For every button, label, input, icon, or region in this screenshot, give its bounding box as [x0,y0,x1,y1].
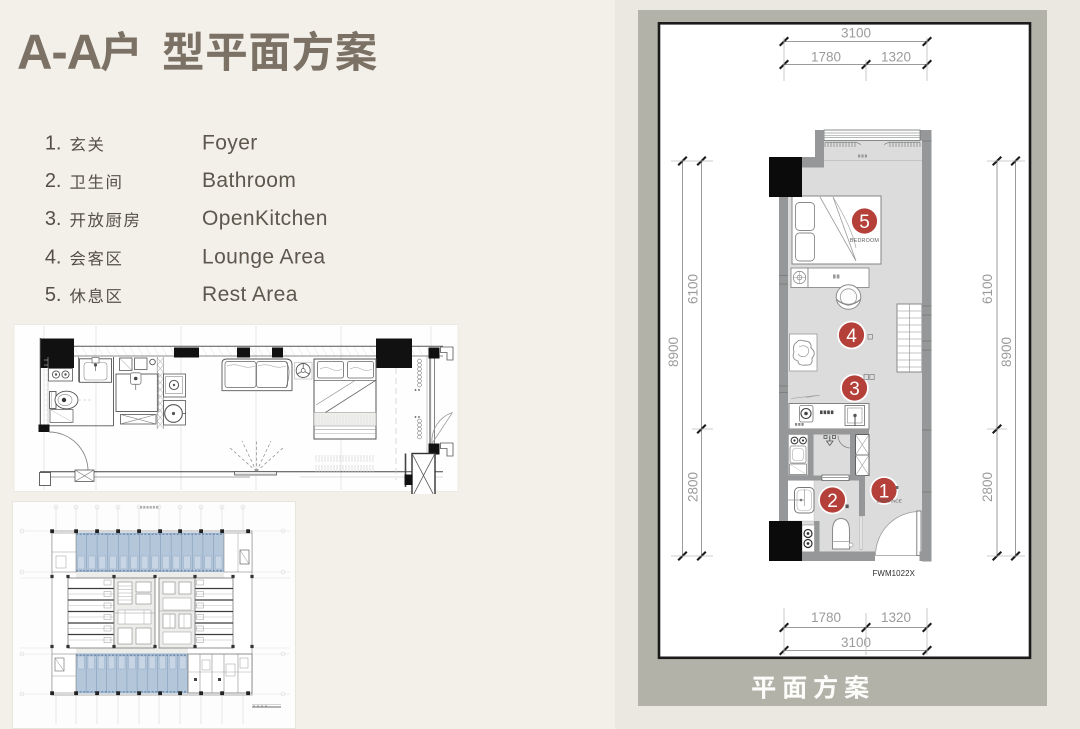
svg-text:3: 3 [849,379,860,400]
svg-text:Rest Area: Rest Area [202,283,298,306]
svg-text:Lounge Area: Lounge Area [202,246,326,269]
svg-text:2800: 2800 [980,472,995,502]
svg-text:2800: 2800 [686,472,701,502]
svg-text:5.: 5. [45,284,62,306]
svg-text:6100: 6100 [980,274,995,304]
svg-text:1320: 1320 [881,50,911,65]
svg-text:3100: 3100 [841,635,871,650]
svg-text:5: 5 [859,212,870,233]
svg-text:BEDROOM: BEDROOM [850,238,880,244]
svg-text:3100: 3100 [841,26,871,41]
svg-text:4: 4 [846,326,857,347]
svg-text:Foyer: Foyer [202,132,258,155]
svg-text:Bathroom: Bathroom [202,169,296,192]
svg-text:2: 2 [827,491,838,512]
svg-text:ENTRANCE: ENTRANCE [877,499,902,504]
svg-text:1320: 1320 [881,610,911,625]
svg-text:1780: 1780 [811,50,841,65]
svg-text:A-A: A-A [17,26,102,80]
svg-text:8900: 8900 [666,337,681,367]
svg-text:OpenKitchen: OpenKitchen [202,207,328,230]
svg-text:3.: 3. [45,208,62,230]
svg-text:4.: 4. [45,247,62,269]
svg-text:FWM1022X: FWM1022X [873,569,916,578]
svg-text:1.: 1. [45,133,62,155]
svg-text:8900: 8900 [999,337,1014,367]
svg-text:2.: 2. [45,170,62,192]
svg-text:6100: 6100 [686,274,701,304]
svg-text:1780: 1780 [811,610,841,625]
